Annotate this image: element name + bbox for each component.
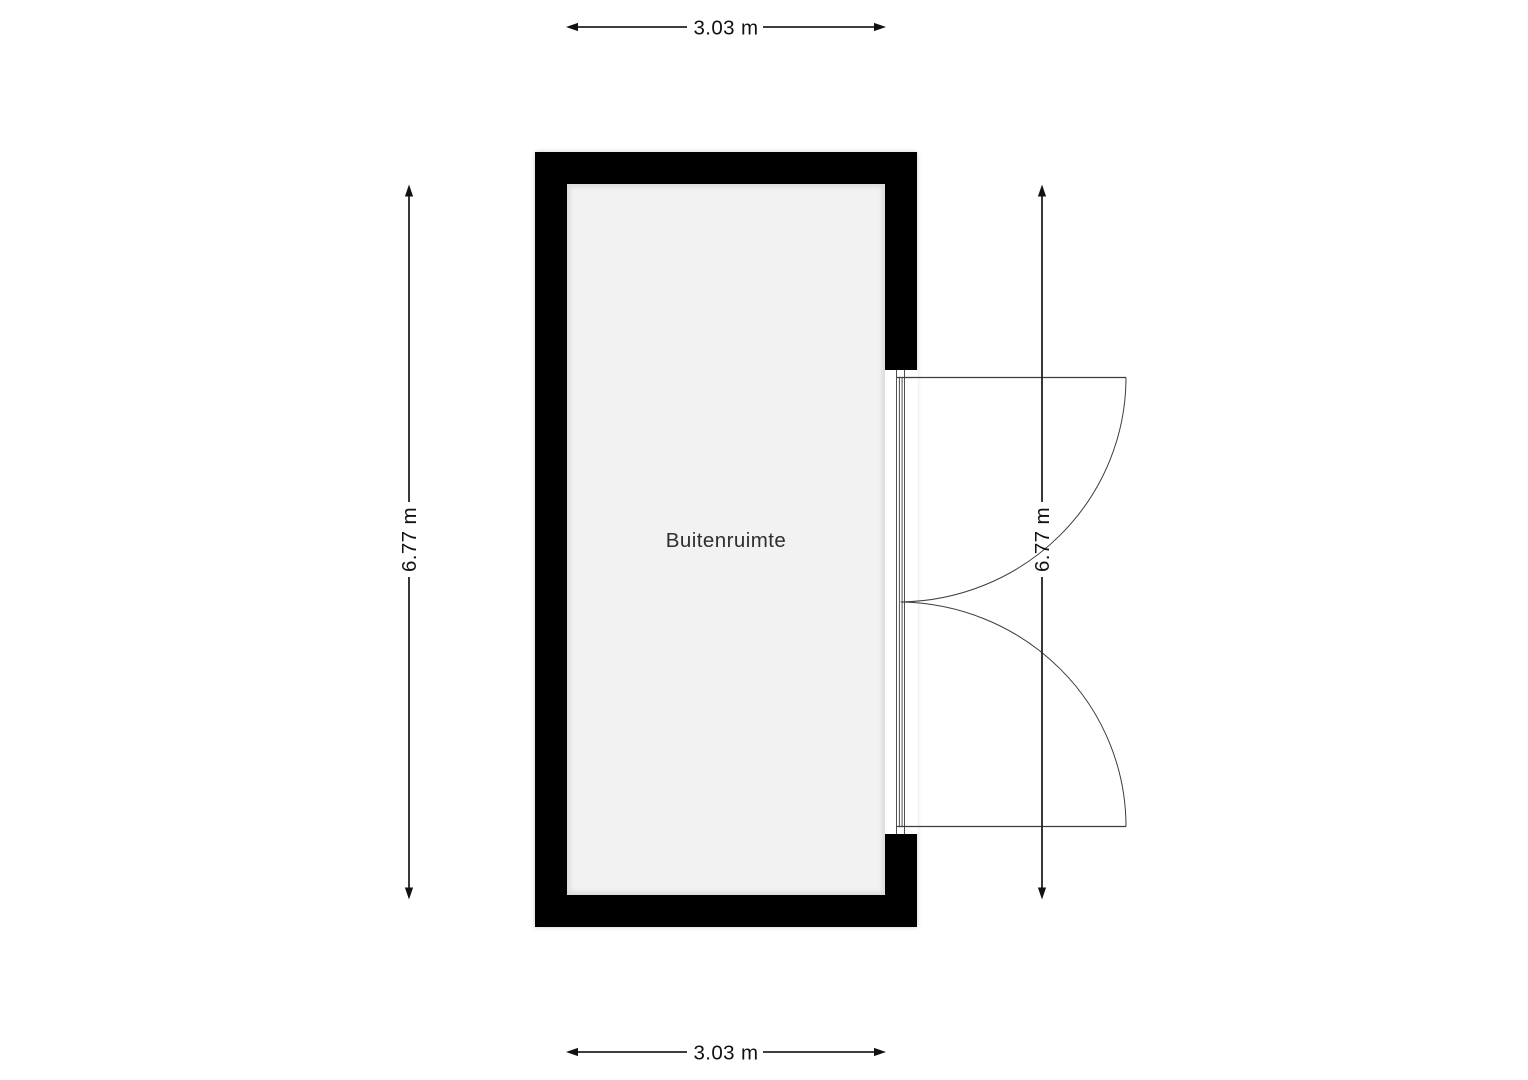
svg-text:6.77 m: 6.77 m: [1031, 507, 1054, 572]
svg-text:3.03 m: 3.03 m: [693, 17, 758, 40]
svg-text:Buitenruimte: Buitenruimte: [666, 529, 786, 552]
svg-text:6.77 m: 6.77 m: [398, 507, 421, 572]
svg-text:3.03 m: 3.03 m: [693, 1042, 758, 1065]
